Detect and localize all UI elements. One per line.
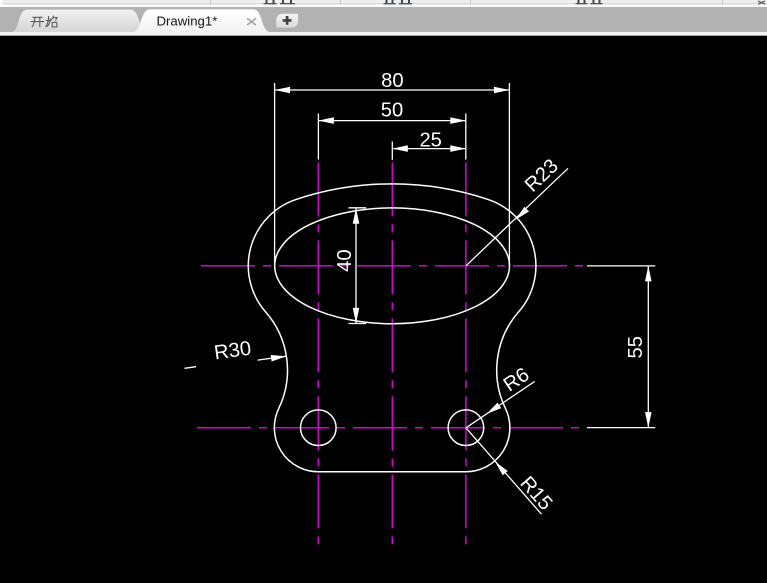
- svg-text:Drawing1*: Drawing1*: [157, 14, 218, 29]
- svg-text:80: 80: [381, 70, 403, 92]
- svg-text:50: 50: [381, 99, 403, 121]
- svg-text:55: 55: [625, 336, 647, 358]
- svg-text:25: 25: [419, 130, 441, 152]
- svg-text:40: 40: [334, 249, 356, 271]
